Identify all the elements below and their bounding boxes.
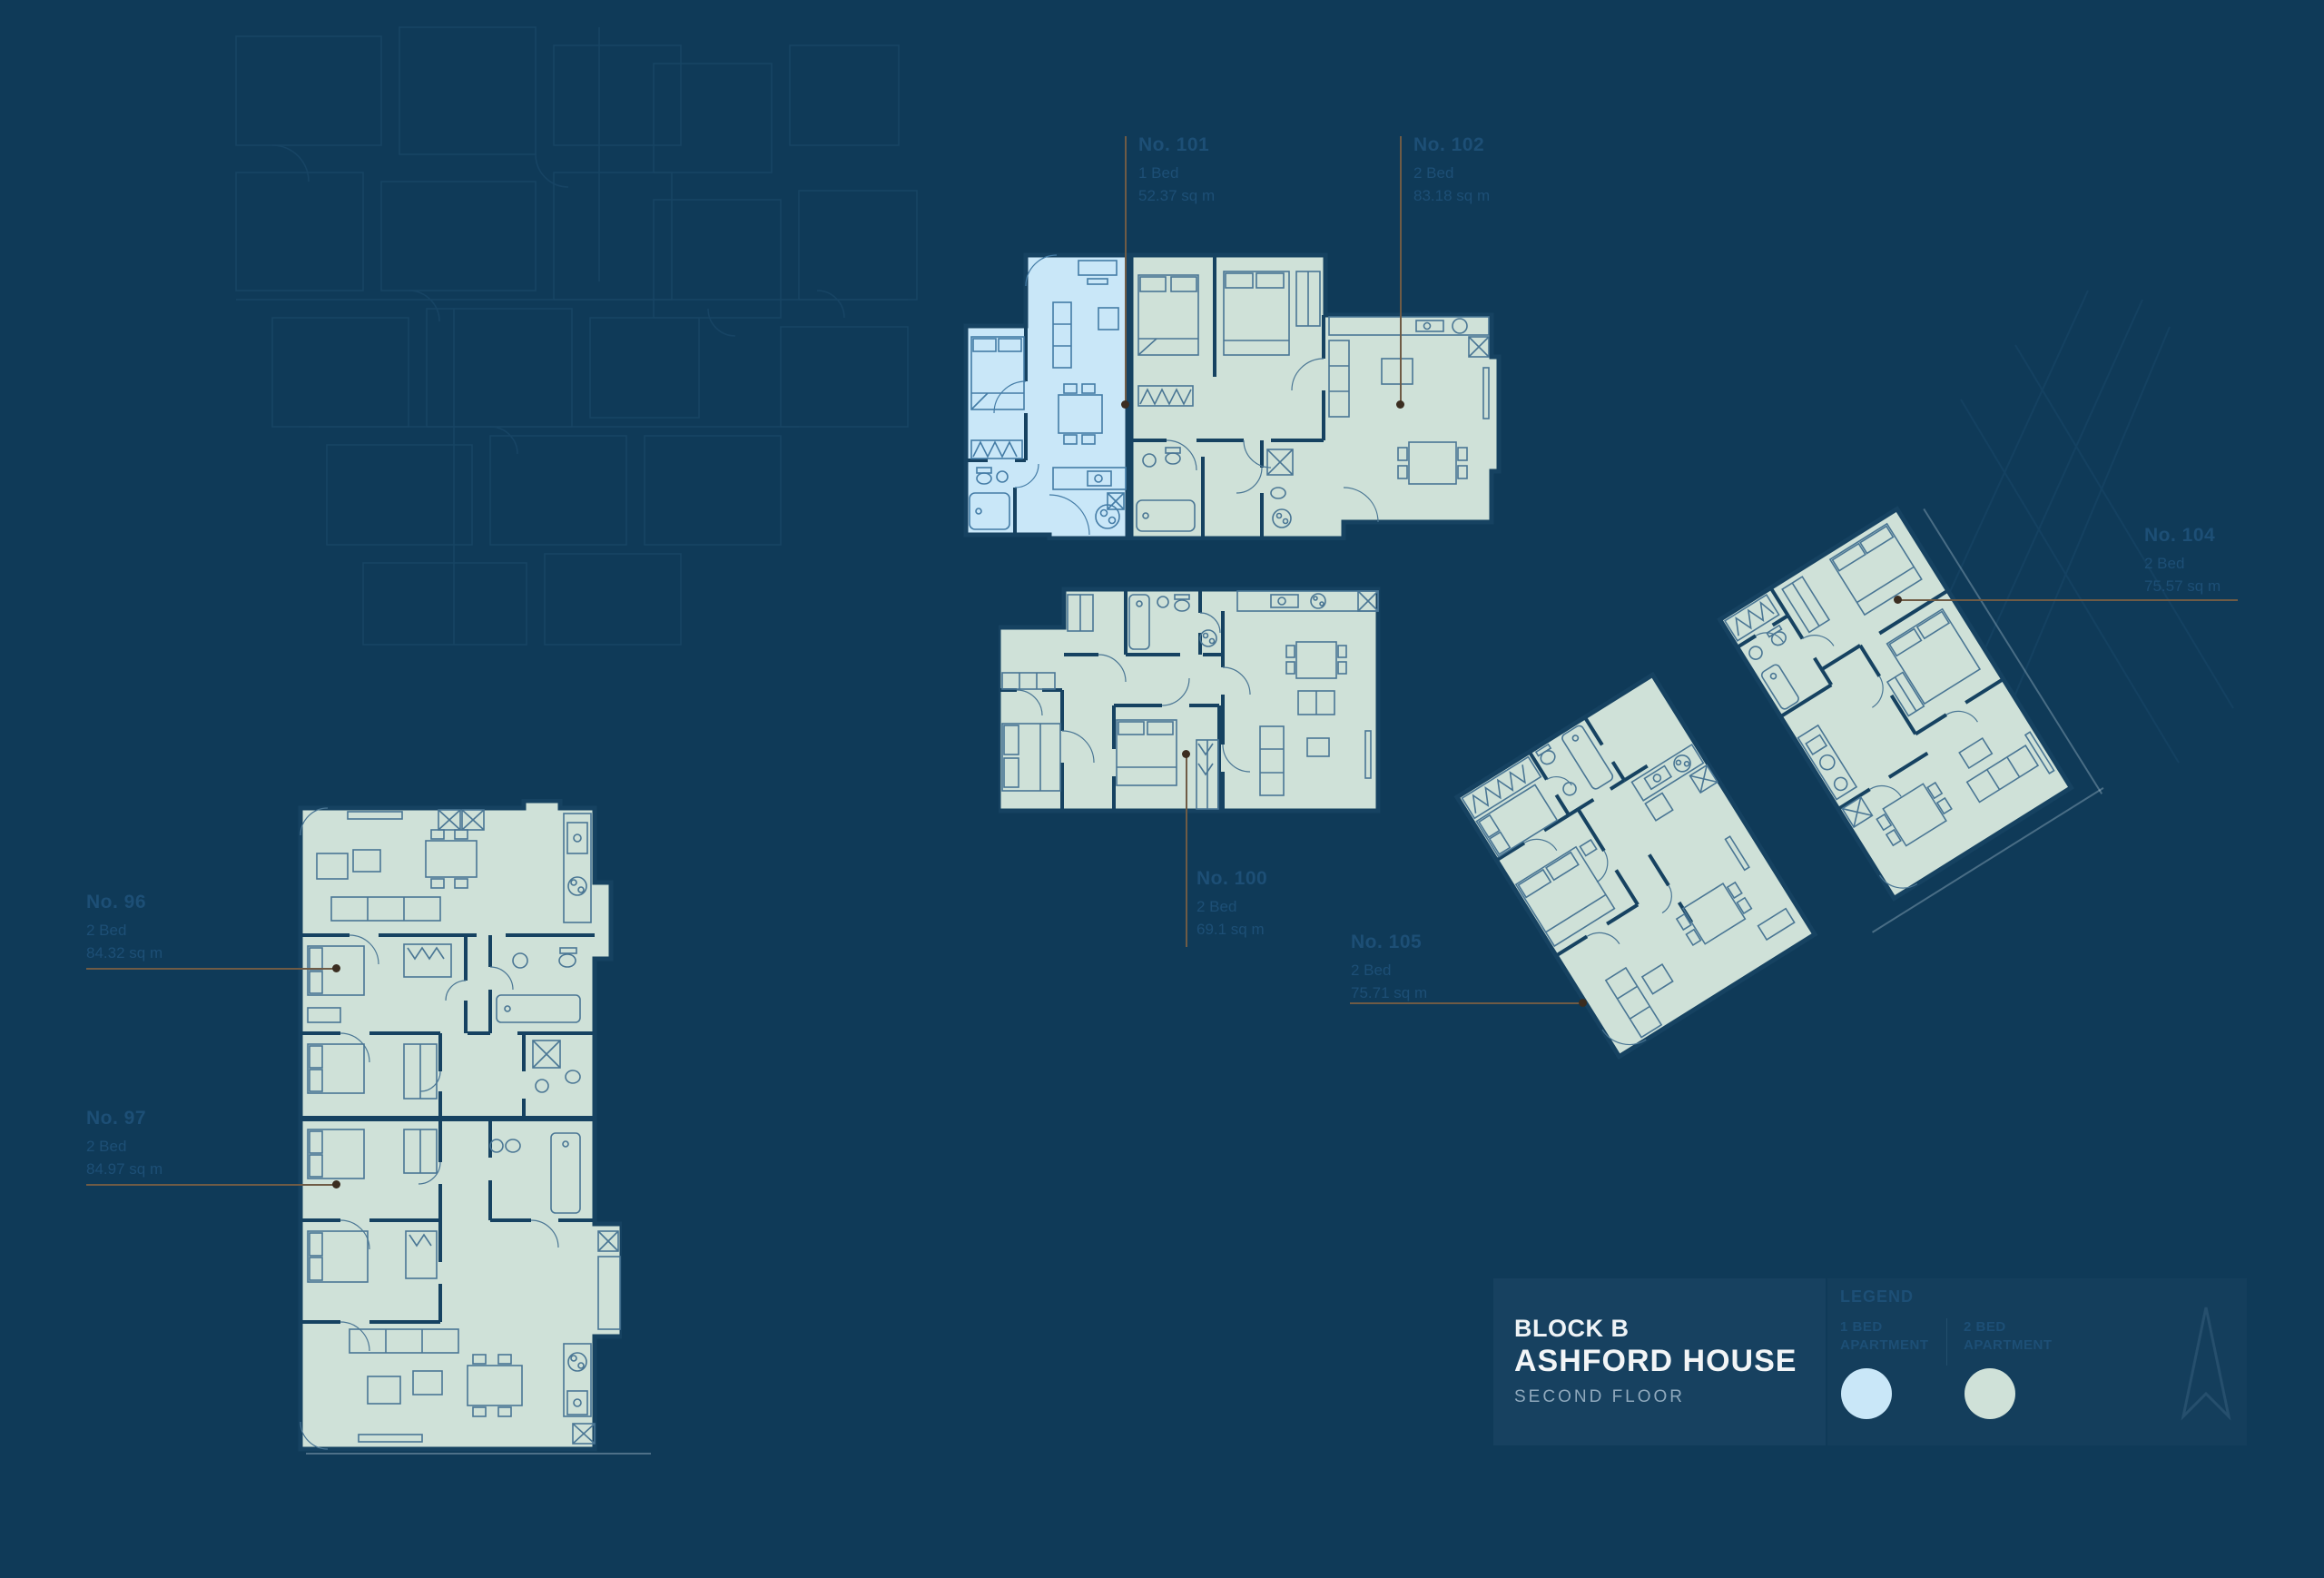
legend-label-1bed: 1 BED APARTMENT (1840, 1318, 1949, 1354)
leader-dot-100 (1182, 750, 1190, 758)
unit-102-plan (1131, 255, 1499, 538)
floor-label: SECOND FLOOR (1514, 1387, 1685, 1407)
left-cluster-baseline (306, 1453, 651, 1455)
unit-101-plan (966, 255, 1128, 538)
leader-dot-96 (332, 964, 340, 972)
leader-dot-97 (332, 1180, 340, 1188)
unit-label-101: No. 101 1 Bed 52.37 sq m (1138, 134, 1275, 204)
plan-middle-cluster[interactable] (999, 586, 1398, 817)
plan-top-cluster[interactable] (962, 250, 1502, 540)
leader-line-102 (1400, 136, 1402, 404)
north-arrow-icon (2165, 1298, 2247, 1435)
leader-dot-104 (1894, 596, 1902, 604)
plan-left-cluster[interactable] (295, 799, 622, 1453)
legend-label-2bed: 2 BED APARTMENT (1964, 1318, 2073, 1354)
floorplan-page: No. 101 1 Bed 52.37 sq m No. 102 2 Bed 8… (0, 0, 2324, 1578)
legend-heading: LEGEND (1840, 1287, 1914, 1307)
leader-line-104 (1897, 599, 2238, 601)
leader-line-101 (1125, 136, 1127, 404)
leader-dot-102 (1396, 400, 1404, 409)
ghost-background-plans (218, 9, 1035, 699)
leader-line-100 (1186, 754, 1187, 947)
legend-dot-2bed (1965, 1368, 2015, 1419)
block-label: BLOCK B (1514, 1315, 1630, 1343)
building-name: ASHFORD HOUSE (1514, 1344, 1797, 1379)
unit-label-104: No. 104 2 Bed 75.57 sq m (2144, 525, 2280, 595)
legend-dot-1bed (1841, 1368, 1892, 1419)
leader-line-96 (86, 968, 338, 970)
leader-line-97 (86, 1184, 338, 1186)
leader-line-105 (1350, 1002, 1584, 1004)
leader-dot-101 (1121, 400, 1129, 409)
unit-label-102: No. 102 2 Bed 83.18 sq m (1413, 134, 1550, 204)
leader-dot-105 (1579, 999, 1587, 1007)
legend-divider (1946, 1318, 1947, 1366)
unit-label-100: No. 100 2 Bed 69.1 sq m (1196, 868, 1333, 938)
unit-label-97: No. 97 2 Bed 84.97 sq m (86, 1108, 222, 1178)
unit-label-96: No. 96 2 Bed 84.32 sq m (86, 892, 222, 962)
unit-label-105: No. 105 2 Bed 75.71 sq m (1351, 932, 1487, 1001)
